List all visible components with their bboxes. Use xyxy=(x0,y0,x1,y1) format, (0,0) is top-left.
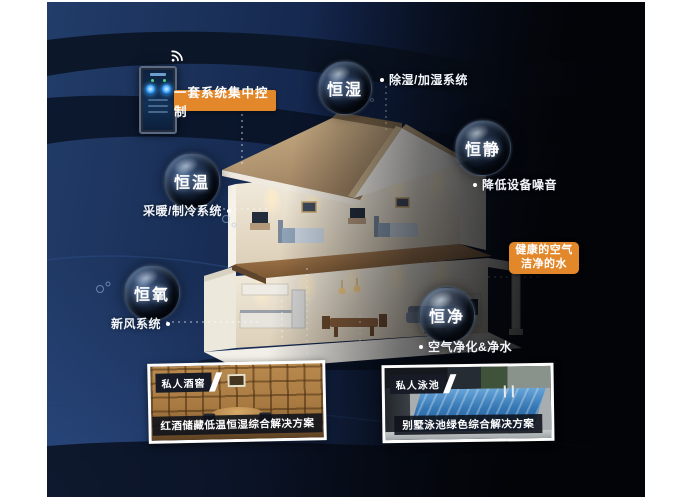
wine-wall-art xyxy=(227,374,245,387)
note-purity: 空气净化&净水 xyxy=(414,338,512,355)
bubble-purity-title: 恒净 xyxy=(429,303,465,327)
bubble-oxygen-title: 恒氧 xyxy=(134,281,170,305)
healthy-air-callout: 健康的空气 洁净的水 xyxy=(509,242,579,274)
note-dot xyxy=(166,322,170,326)
note-temperature: 采暖/制冷系统 xyxy=(143,202,236,219)
phone-menu-row xyxy=(148,105,168,107)
bubble-humidity: 恒湿 xyxy=(318,61,372,115)
note-dot xyxy=(473,183,477,187)
callout-line2: 洁净的水 xyxy=(521,258,567,272)
pool-photo-tag: 私人泳池 xyxy=(390,374,446,394)
note-humidity-text: 除湿/加湿系统 xyxy=(389,71,468,88)
central-control-banner: 一套系统集中控制 xyxy=(174,90,276,111)
note-temperature-text: 采暖/制冷系统 xyxy=(143,202,222,219)
note-humidity: 除湿/加湿系统 xyxy=(375,71,468,88)
bubble-quiet-title: 恒静 xyxy=(465,136,501,160)
note-dot xyxy=(380,78,384,82)
wine-cellar-photo: 私人酒窖 红酒储藏低温恒湿综合解决方案 xyxy=(147,360,327,444)
phone-status-dots xyxy=(151,79,166,82)
infographic-poster: 一套系统集中控制 恒湿 恒静 恒温 恒氧 恒净 除湿/加湿系统 xyxy=(0,0,700,497)
bubble-oxygen: 恒氧 xyxy=(124,265,180,321)
wifi-icon xyxy=(166,48,186,66)
note-oxygen-text: 新风系统 xyxy=(111,315,161,332)
callout-line1: 健康的空气 xyxy=(515,244,573,258)
phone-knob-right xyxy=(161,84,172,95)
bubble-quiet: 恒静 xyxy=(455,120,511,176)
phone-menu-row xyxy=(148,111,168,113)
bubble-purity: 恒净 xyxy=(419,287,475,343)
phone-titlebar xyxy=(150,73,167,76)
note-dot xyxy=(227,209,231,213)
phone-menu-row xyxy=(148,99,168,101)
central-control-banner-label: 一套系统集中控制 xyxy=(174,82,276,120)
pool-photo-caption: 别墅泳池绿色综合解决方案 xyxy=(394,414,542,435)
note-dot xyxy=(419,345,423,349)
bubble-temperature-title: 恒温 xyxy=(174,169,210,193)
smart-home-phone xyxy=(139,66,177,134)
dark-panel: 一套系统集中控制 恒湿 恒静 恒温 恒氧 恒净 除湿/加湿系统 xyxy=(47,2,645,497)
bubble-humidity-title: 恒湿 xyxy=(327,76,363,100)
note-quiet-text: 降低设备噪音 xyxy=(482,176,557,193)
pool-ladder xyxy=(504,385,514,397)
note-purity-text: 空气净化&净水 xyxy=(428,338,512,355)
note-quiet: 降低设备噪音 xyxy=(468,176,557,193)
wine-photo-tag: 私人酒窖 xyxy=(155,373,211,393)
phone-control-knobs xyxy=(145,84,172,95)
phone-knob-left xyxy=(145,84,156,95)
pool-photo: 私人泳池 别墅泳池绿色综合解决方案 xyxy=(381,363,554,443)
note-oxygen: 新风系统 xyxy=(111,315,175,332)
bubble-temperature: 恒温 xyxy=(164,153,220,209)
wine-photo-caption: 红酒储藏低温恒湿综合解决方案 xyxy=(152,413,322,436)
phone-screen xyxy=(143,70,173,130)
